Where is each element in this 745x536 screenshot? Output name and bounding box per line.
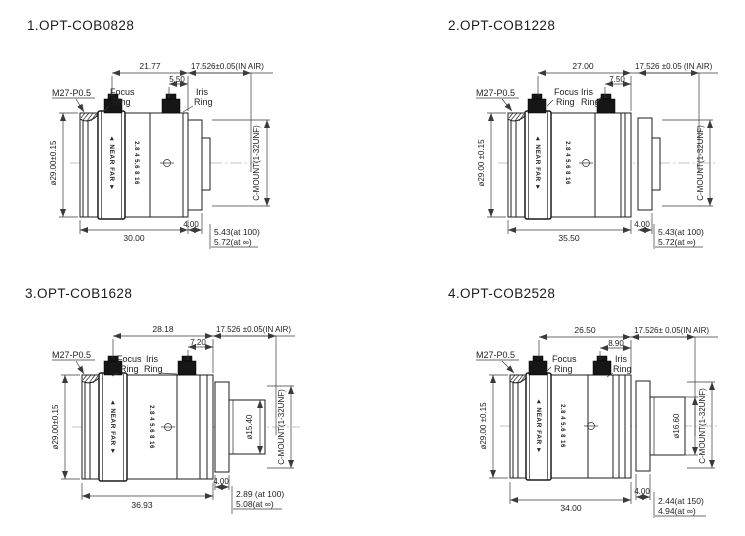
iris-knob <box>178 361 196 375</box>
dim-length: 36.93 <box>131 500 153 510</box>
panel-cob0828: 1.OPT-COB0828 ◄ NEAR FAR ► 2.8 4 5.6 8 1… <box>0 0 372 268</box>
rear-step-ring <box>636 381 650 471</box>
lens-drawing-sheet: 1.OPT-COB0828 ◄ NEAR FAR ► 2.8 4 5.6 8 1… <box>0 0 745 536</box>
lens-drawing-1: 1.OPT-COB0828 ◄ NEAR FAR ► 2.8 4 5.6 8 1… <box>0 0 372 268</box>
iris-ring-label: Iris <box>196 87 208 97</box>
mount-label: C-MOUNT(1-32UNF) <box>252 125 261 201</box>
lens-body: ◄ NEAR FAR ► 2.8 4 5.6 8 16 <box>80 94 210 219</box>
bfl-near: 2.44(at 150) <box>658 496 704 506</box>
focus-ring-label: Focus <box>110 87 135 97</box>
svg-text:Ring: Ring <box>120 364 139 374</box>
dim-focus-to-flange: 27.00 <box>572 61 594 71</box>
focus-ring-label: Focus <box>554 87 579 97</box>
dim-iris-to-flange: 7.50 <box>609 75 625 84</box>
rear-diameter-label: ø16.60 <box>672 413 681 438</box>
bfl-inf: 5.08(at ∞) <box>236 499 274 509</box>
rear-diameter-label: ø15.40 <box>245 414 254 439</box>
focus-ring-label: Focus <box>552 354 577 364</box>
iris-knob <box>597 99 615 113</box>
thread-label: M27-P0.5 <box>476 88 515 98</box>
svg-text:Ring: Ring <box>613 364 632 374</box>
lens-body: ◄ NEAR FAR ► 2.8 4 5.6 8 16 <box>508 94 660 219</box>
dim-length: 30.00 <box>123 233 145 243</box>
iris-knob <box>162 99 180 113</box>
svg-text:Ring: Ring <box>144 364 163 374</box>
dim-step: 4.00 <box>634 220 650 229</box>
dim-length: 35.50 <box>558 233 580 243</box>
dim-focus-to-flange: 28.18 <box>152 324 174 334</box>
focus-knob <box>528 99 546 113</box>
dim-iris-to-flange: 5.50 <box>169 75 185 84</box>
near-far-scale: ◄ NEAR FAR ► <box>109 399 116 455</box>
diameter-label: ø29.00±0.15 <box>51 404 60 449</box>
iris-knob <box>593 361 611 375</box>
panel-cob2528: 4.OPT-COB2528 ◄ NEAR FAR ► 2.8 4 5.6 8 1… <box>373 268 745 536</box>
bfl-near: 5.43(at 100) <box>214 227 260 237</box>
dim-step: 4.00 <box>183 220 199 229</box>
lens-drawing-3: 3.OPT-COB1628 ◄ NEAR FAR ► 2.8 4 5.6 8 1… <box>0 268 372 536</box>
thread-label: M27-P0.5 <box>52 88 91 98</box>
cmount-thread <box>202 138 210 190</box>
dim-flange-air: 17.526 ±0.05 (IN AIR) <box>635 62 713 71</box>
aperture-scale: 2.8 4 5.6 8 16 <box>564 141 570 185</box>
diameter-label: ø29.00 ±0.15 <box>479 402 488 450</box>
drawing-title: 3.OPT-COB1628 <box>25 286 132 301</box>
iris-ring-label: Iris <box>581 87 593 97</box>
mount-label: C-MOUNT(1-32UNF) <box>698 388 707 464</box>
dim-focus-to-flange: 26.50 <box>574 325 596 335</box>
near-far-scale: ◄ NEAR FAR ► <box>534 135 541 191</box>
panel-cob1228: 2.OPT-COB1228 ◄ NEAR FAR ► 2.8 4 5.6 8 1… <box>373 0 745 268</box>
thread-label: M27-P0.5 <box>52 350 91 360</box>
drawing-title: 4.OPT-COB2528 <box>448 286 555 301</box>
thread-label: M27-P0.5 <box>476 350 515 360</box>
dim-iris-to-flange: 7.20 <box>190 338 206 347</box>
panel-cob1628: 3.OPT-COB1628 ◄ NEAR FAR ► 2.8 4 5.6 8 1… <box>0 268 372 536</box>
dim-flange-air: 17.526± 0.05(IN AIR) <box>634 326 709 335</box>
aperture-scale: 2.8 4 5.6 8 16 <box>133 141 139 185</box>
dim-length: 34.00 <box>560 503 582 513</box>
rear-step-ring <box>215 382 229 472</box>
diameter-label: ø29.00 ±0.15 <box>477 139 486 187</box>
dim-flange-air: 17.526 ±0.05(IN AIR) <box>216 325 291 334</box>
bfl-inf: 4.94(at ∞) <box>658 506 696 516</box>
drawing-title: 1.OPT-COB0828 <box>27 18 134 33</box>
dim-focus-to-flange: 21.77 <box>139 61 161 71</box>
near-far-scale: ◄ NEAR FAR ► <box>108 135 115 191</box>
bfl-near: 2.89 (at 100) <box>236 489 284 499</box>
diameter-label: ø29.00±0.15 <box>49 140 58 185</box>
dim-iris-to-flange: 8.90 <box>608 339 624 348</box>
focus-knob <box>529 361 547 375</box>
aperture-scale: 2.8 4 5.6 8 16 <box>559 404 565 448</box>
lens-drawing-2: 2.OPT-COB1228 ◄ NEAR FAR ► 2.8 4 5.6 8 1… <box>373 0 745 268</box>
lens-body: ◄ NEAR FAR ► 2.8 4 5.6 8 16 <box>510 356 685 480</box>
drawing-title: 2.OPT-COB1228 <box>448 18 555 33</box>
lens-drawing-4: 4.OPT-COB2528 ◄ NEAR FAR ► 2.8 4 5.6 8 1… <box>373 268 745 536</box>
bfl-inf: 5.72(at ∞) <box>658 237 696 247</box>
mount-label: C-MOUNT(1-32UNF) <box>277 389 286 465</box>
svg-text:Ring: Ring <box>112 97 131 107</box>
near-far-scale: ◄ NEAR FAR ► <box>535 398 542 454</box>
cmount-thread <box>652 138 660 190</box>
mount-label: C-MOUNT(1-32UNF) <box>696 125 705 201</box>
svg-text:Ring: Ring <box>556 97 575 107</box>
rear-step-ring <box>638 118 652 210</box>
rear-step-ring <box>188 120 202 210</box>
bfl-near: 5.43(at 100) <box>658 227 704 237</box>
dim-step: 4.00 <box>213 477 229 486</box>
focus-ring-label: Focus <box>117 354 142 364</box>
svg-text:Ring: Ring <box>194 97 213 107</box>
dim-flange-air: 17.526±0.05(IN AIR) <box>191 62 264 71</box>
aperture-scale: 2.8 4 5.6 8 16 <box>148 405 154 449</box>
lens-body: ◄ NEAR FAR ► 2.8 4 5.6 8 16 <box>82 356 265 481</box>
dim-step: 4.00 <box>634 487 650 496</box>
iris-ring-label: Iris <box>615 354 627 364</box>
iris-ring-label: Iris <box>146 354 158 364</box>
bfl-inf: 5.72(at ∞) <box>214 237 252 247</box>
svg-text:Ring: Ring <box>554 364 573 374</box>
